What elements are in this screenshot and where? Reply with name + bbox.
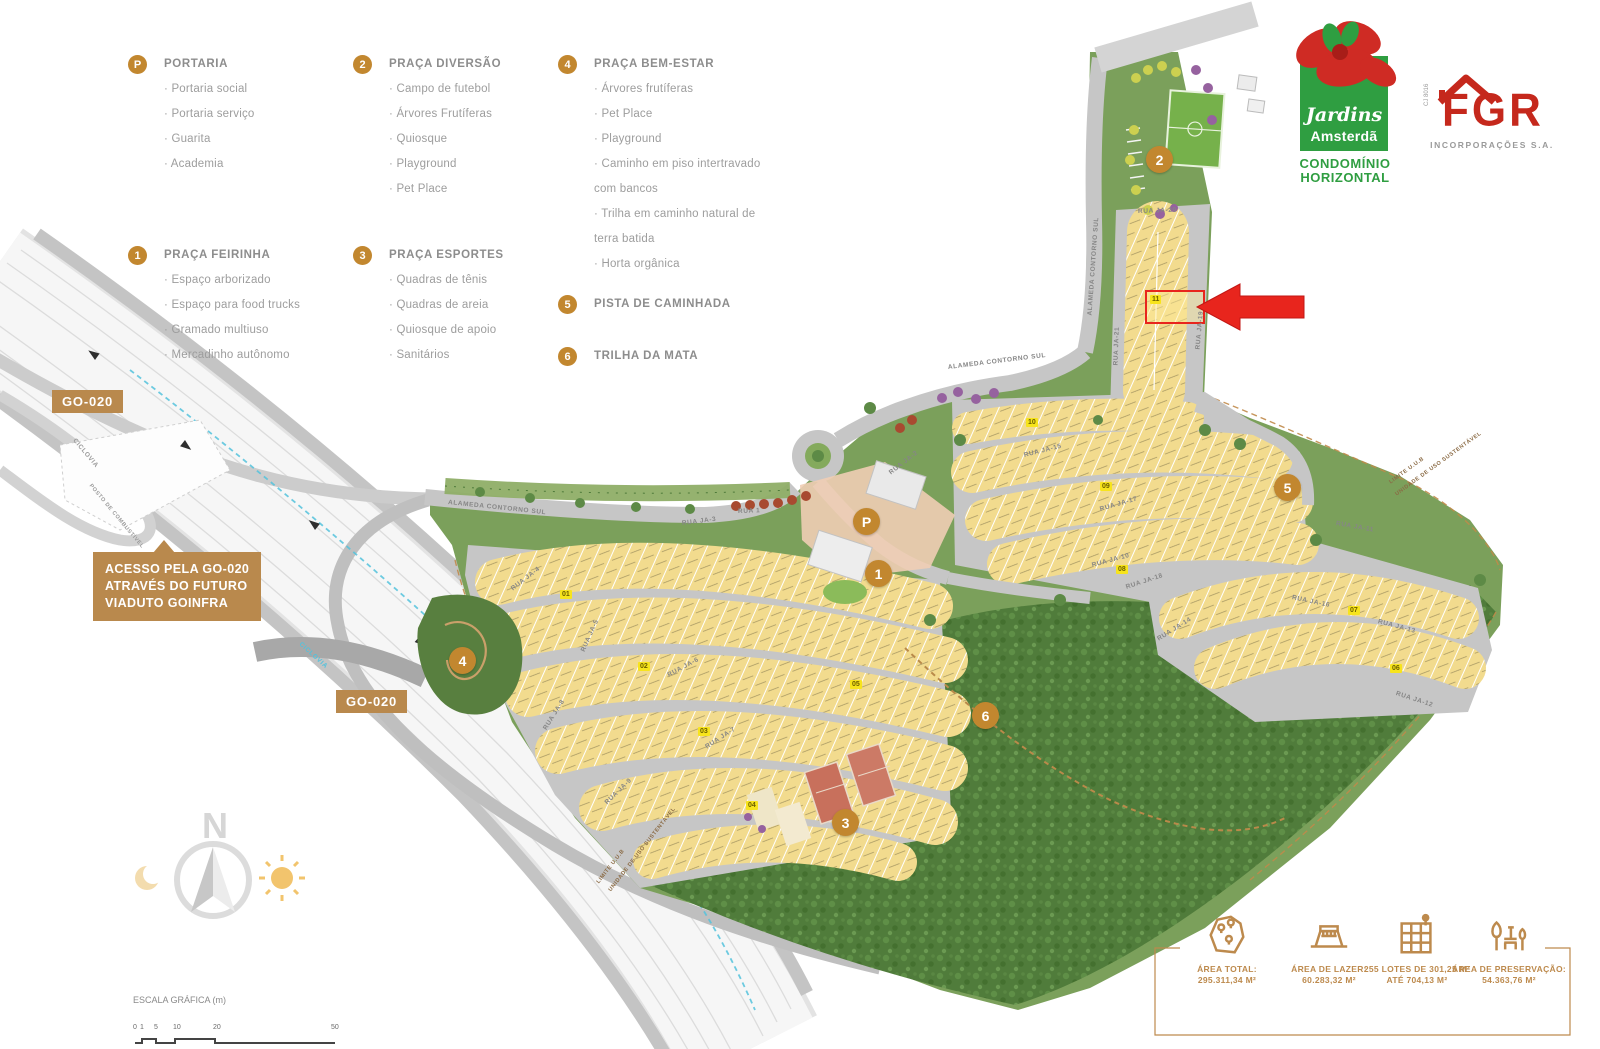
jardins-sub2: HORIZONTAL [1280, 170, 1410, 185]
highlight-arrow-icon [1197, 284, 1304, 330]
masterplan-poster: { "legend": { "groups": [ {"marker":"P",… [0, 0, 1600, 1049]
jardins-script-text: Jardins [1300, 104, 1388, 126]
legend-title: PRAÇA FEIRINHA [164, 249, 270, 261]
map-marker-2: 2 [1146, 146, 1173, 173]
jardins-amsterda-logo: Jardins Amsterdã CONDOMÍNIO HORIZONTAL [1280, 8, 1410, 183]
scale-tick: 5 [154, 1024, 158, 1031]
preservacao-icon [1486, 912, 1532, 958]
football-field [1165, 90, 1224, 168]
legend-item: Quiosque de apoio [389, 318, 574, 343]
map-marker-3: 3 [832, 809, 859, 836]
area-lazer-icon [1306, 912, 1352, 958]
legend-item: Campo de futebol [389, 77, 574, 102]
fgr-logo: FGR CJ 8016 INCORPORAÇÕES S.A. [1420, 68, 1560, 158]
legend-marker-2: 2 [353, 55, 372, 74]
jardins-name-text: Amsterdã [1300, 128, 1388, 144]
legend-marker-4: 4 [558, 55, 577, 74]
map-marker-6: 6 [972, 702, 999, 729]
highway-badge: GO-020 [52, 390, 123, 413]
legend-item: Mercadinho autônomo [164, 343, 349, 368]
legend-item: Espaço para food trucks [164, 293, 349, 318]
block-chip: 05 [850, 680, 862, 689]
legend-item: Portaria serviço [164, 102, 349, 127]
legend-item: Gramado multiuso [164, 318, 349, 343]
legend-item: Árvores frutíferas [594, 77, 769, 102]
block-chip: 01 [560, 590, 572, 599]
roundabout [792, 430, 844, 482]
map-marker-1: 1 [865, 560, 892, 587]
legend-item: Espaço arborizado [164, 268, 349, 293]
legend-item: Portaria social [164, 77, 349, 102]
scale-title: ESCALA GRÁFICA (m) [133, 995, 343, 1005]
scale-tick: 50 [331, 1024, 339, 1031]
compass-art [120, 795, 320, 925]
access-callout: ACESSO PELA GO-020 ATRAVÉS DO FUTURO VIA… [93, 552, 261, 621]
legend-item: Árvores Frutíferas [389, 102, 574, 127]
map-marker-portaria: P [853, 508, 880, 535]
legend-item: Quadras de tênis [389, 268, 574, 293]
map-marker-5: 5 [1274, 474, 1301, 501]
stats-panel: ÁREA TOTAL:295.311,34 M² ÁREA DE LAZER:6… [1150, 900, 1575, 1040]
legend-title: PRAÇA ESPORTES [389, 249, 504, 261]
block-chip: 08 [1116, 565, 1128, 574]
lotes-icon [1394, 912, 1440, 958]
street-label: RUA JA-20 [1138, 207, 1177, 215]
scale-bar: ESCALA GRÁFICA (m) 0 1 5 10 20 50 [133, 995, 343, 1033]
fgr-registration: CJ 8016 [1424, 84, 1430, 106]
scale-bar-line [133, 1035, 343, 1045]
legend-item: Quadras de areia [389, 293, 574, 318]
legend-item: Pet Place [389, 177, 574, 202]
legend-marker-5: 5 [558, 295, 577, 314]
block-chip: 10 [1026, 418, 1038, 427]
stat-preservacao: ÁREA DE PRESERVAÇÃO:54.363,76 M² [1450, 912, 1568, 986]
map-marker-4: 4 [449, 647, 476, 674]
legend-title: PRAÇA DIVERSÃO [389, 58, 501, 70]
jardins-sub1: CONDOMÍNIO [1280, 156, 1410, 171]
area-total-icon [1204, 912, 1250, 958]
street-label: RUA 1 [738, 507, 760, 515]
legend-item: Trilha em caminho natural de terra batid… [594, 202, 769, 252]
scale-tick: 20 [213, 1024, 221, 1031]
fgr-subtitle: INCORPORAÇÕES S.A. [1424, 140, 1560, 150]
scale-tick: 1 [140, 1024, 144, 1031]
legend-title: PRAÇA BEM-ESTAR [594, 58, 714, 70]
legend-marker-6: 6 [558, 347, 577, 366]
legend-item: Academia [164, 152, 349, 177]
legend-item: Playground [594, 127, 769, 152]
block-chip: 04 [746, 801, 758, 810]
block-chip: 07 [1348, 606, 1360, 615]
callout-pointer [153, 540, 175, 553]
legend-item: Sanitários [389, 343, 574, 368]
legend-item: Guarita [164, 127, 349, 152]
legend-item: Pet Place [594, 102, 769, 127]
legend-title: PISTA DE CAMINHADA [594, 298, 731, 310]
highway-badge: GO-020 [336, 690, 407, 713]
legend-title: PORTARIA [164, 58, 228, 70]
legend-title: TRILHA DA MATA [594, 350, 698, 362]
legend-item: Playground [389, 152, 574, 177]
block-chip: 02 [638, 662, 650, 671]
legend-marker-1: 1 [128, 246, 147, 265]
legend-item: Horta orgânica [594, 252, 769, 277]
compass-rose: N [120, 795, 320, 925]
legend-item: Caminho em piso intertravado com bancos [594, 152, 769, 202]
block-chip: 06 [1390, 664, 1402, 673]
legend-marker-3: 3 [353, 246, 372, 265]
fgr-letters: FGR [1442, 85, 1544, 138]
block-chip: 03 [698, 727, 710, 736]
stat-area-total: ÁREA TOTAL:295.311,34 M² [1168, 912, 1286, 986]
scale-tick: 10 [173, 1024, 181, 1031]
scale-tick: 0 [133, 1024, 137, 1031]
legend-marker-p: P [128, 55, 147, 74]
block-chip-highlighted: 11 [1150, 295, 1161, 304]
street-label: RUA JA-21 [1113, 327, 1121, 366]
legend-item: Quiosque [389, 127, 574, 152]
sun-icon [259, 855, 305, 901]
block-chip: 09 [1100, 482, 1112, 491]
